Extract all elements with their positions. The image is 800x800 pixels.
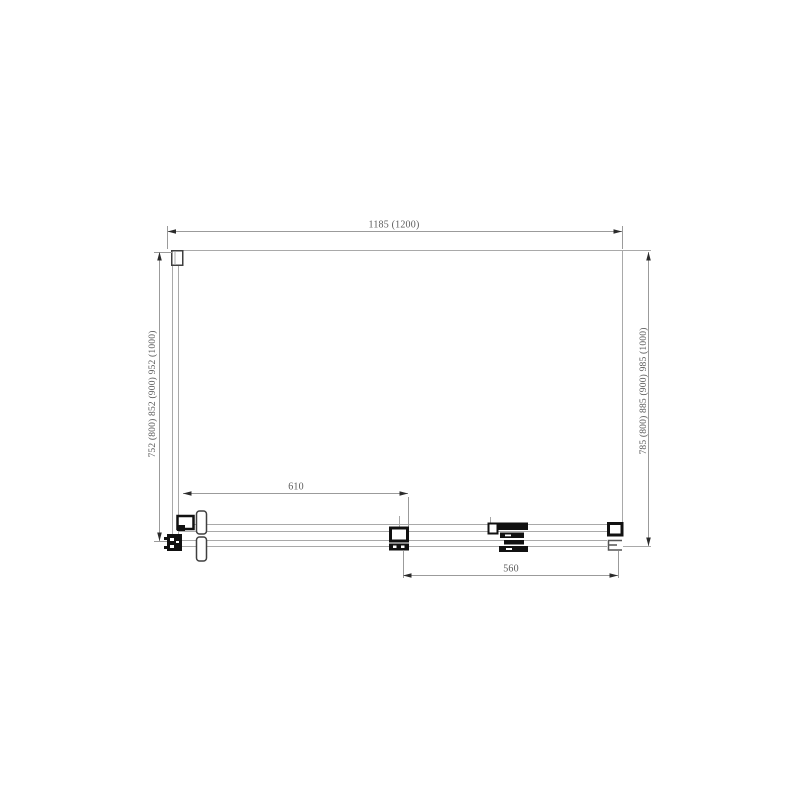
door-handle bbox=[197, 511, 207, 561]
center-roller bbox=[389, 528, 409, 551]
dim-left-height-label: 752 (800) 852 (900) 952 (1000) bbox=[148, 330, 158, 457]
right-end-assembly bbox=[609, 524, 623, 551]
dim-inner-width-label: 610 bbox=[288, 482, 304, 493]
roller-carriage bbox=[489, 523, 529, 553]
dim-right-height-label: 785 (800) 885 (900) 985 (1000) bbox=[639, 327, 649, 454]
dim-top-width-label: 1185 (1200) bbox=[369, 220, 420, 231]
panel-outline bbox=[172, 250, 651, 540]
bottom-track bbox=[179, 516, 651, 547]
drawing-linework bbox=[0, 0, 800, 800]
wall-profile-bracket bbox=[172, 251, 183, 266]
dimension-lines bbox=[154, 226, 649, 578]
dimension-arrows bbox=[157, 229, 651, 578]
dim-bottom-width-label: 560 bbox=[503, 564, 519, 575]
shower-screen-technical-drawing: 1185 (1200) 752 (800) 852 (900) 952 (100… bbox=[0, 0, 800, 800]
